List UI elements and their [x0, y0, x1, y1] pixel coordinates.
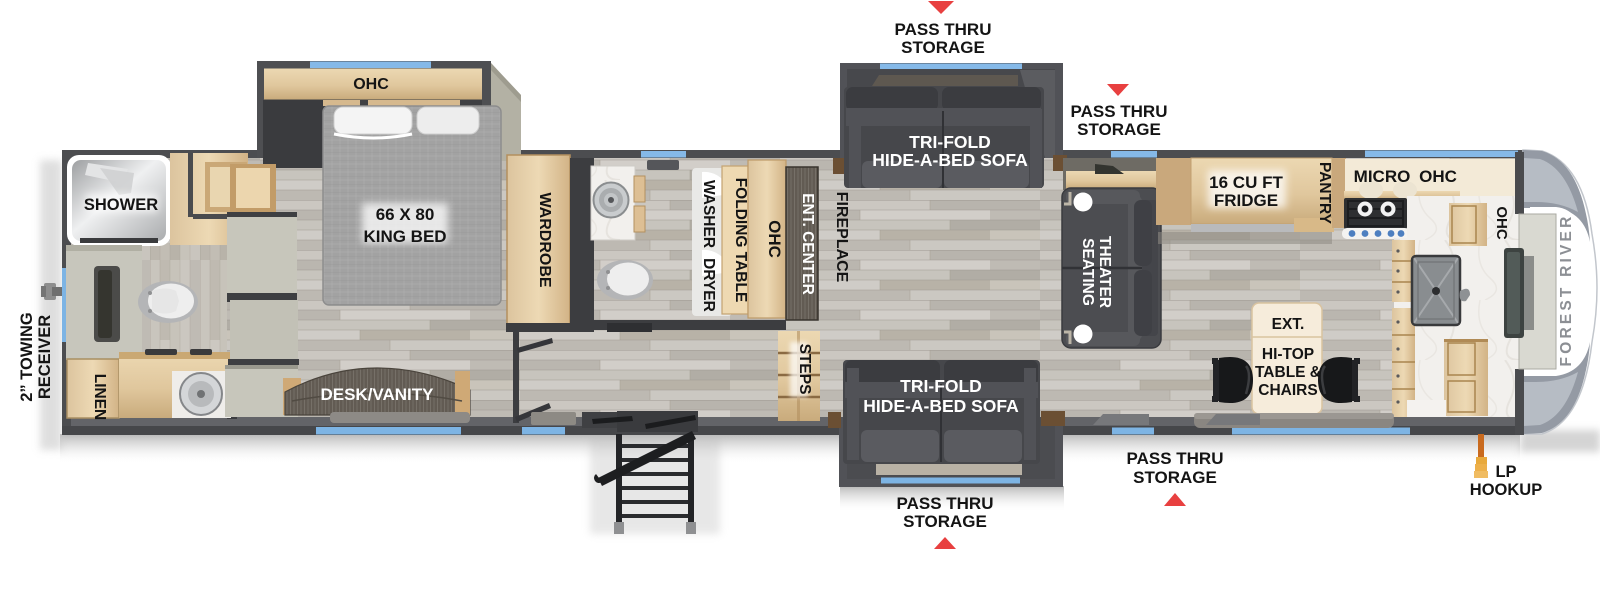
svg-text:66 X 80: 66 X 80	[376, 205, 435, 224]
svg-text:KING BED: KING BED	[363, 227, 446, 246]
svg-text:PASS THRU: PASS THRU	[897, 494, 994, 513]
svg-text:TABLE &: TABLE &	[1255, 364, 1321, 381]
svg-text:CHAIRS: CHAIRS	[1258, 382, 1317, 399]
svg-text:STORAGE: STORAGE	[901, 38, 985, 57]
svg-text:ENT. CENTER: ENT. CENTER	[799, 193, 816, 295]
svg-text:2” TOWING: 2” TOWING	[18, 312, 36, 402]
svg-text:MICRO: MICRO	[1354, 167, 1411, 186]
svg-text:FIREPLACE: FIREPLACE	[833, 192, 850, 283]
svg-text:FOLDING TABLE: FOLDING TABLE	[732, 178, 749, 303]
svg-text:HIDE-A-BED SOFA: HIDE-A-BED SOFA	[863, 396, 1019, 416]
svg-text:OHC: OHC	[765, 220, 784, 258]
svg-text:WASHER: WASHER	[700, 180, 717, 248]
svg-text:HOOKUP: HOOKUP	[1470, 481, 1542, 499]
svg-text:OHC: OHC	[1493, 206, 1510, 240]
svg-text:TRI-FOLD: TRI-FOLD	[909, 132, 991, 152]
svg-text:RECEIVER: RECEIVER	[36, 315, 54, 399]
svg-text:HI-TOP: HI-TOP	[1262, 346, 1314, 363]
svg-text:WARDROBE: WARDROBE	[536, 192, 553, 287]
svg-text:LINEN: LINEN	[91, 374, 108, 421]
svg-text:EXT.: EXT.	[1272, 316, 1305, 333]
svg-text:DRYER: DRYER	[700, 258, 717, 312]
svg-text:OHC: OHC	[353, 76, 389, 93]
svg-text:LP: LP	[1495, 463, 1516, 481]
svg-text:STORAGE: STORAGE	[1133, 468, 1217, 487]
svg-text:PASS THRU: PASS THRU	[1127, 449, 1224, 468]
svg-text:PANTRY: PANTRY	[1316, 162, 1333, 225]
svg-text:16 CU FT: 16 CU FT	[1209, 173, 1283, 192]
svg-text:HIDE-A-BED SOFA: HIDE-A-BED SOFA	[872, 150, 1028, 170]
svg-text:OHC: OHC	[1419, 167, 1457, 186]
svg-text:DESK/VANITY: DESK/VANITY	[320, 385, 434, 404]
svg-text:STORAGE: STORAGE	[903, 512, 987, 531]
svg-text:STORAGE: STORAGE	[1077, 120, 1161, 139]
svg-text:FOREST RIVER: FOREST RIVER	[1558, 214, 1575, 367]
svg-text:PASS THRU: PASS THRU	[895, 20, 992, 39]
svg-text:FRIDGE: FRIDGE	[1214, 191, 1278, 210]
svg-text:SHOWER: SHOWER	[84, 196, 158, 214]
svg-text:PASS THRU: PASS THRU	[1071, 102, 1168, 121]
svg-text:TRI-FOLD: TRI-FOLD	[900, 376, 982, 396]
svg-text:STEPS: STEPS	[796, 344, 813, 395]
svg-text:THEATERSEATING: THEATERSEATING	[1079, 236, 1113, 308]
